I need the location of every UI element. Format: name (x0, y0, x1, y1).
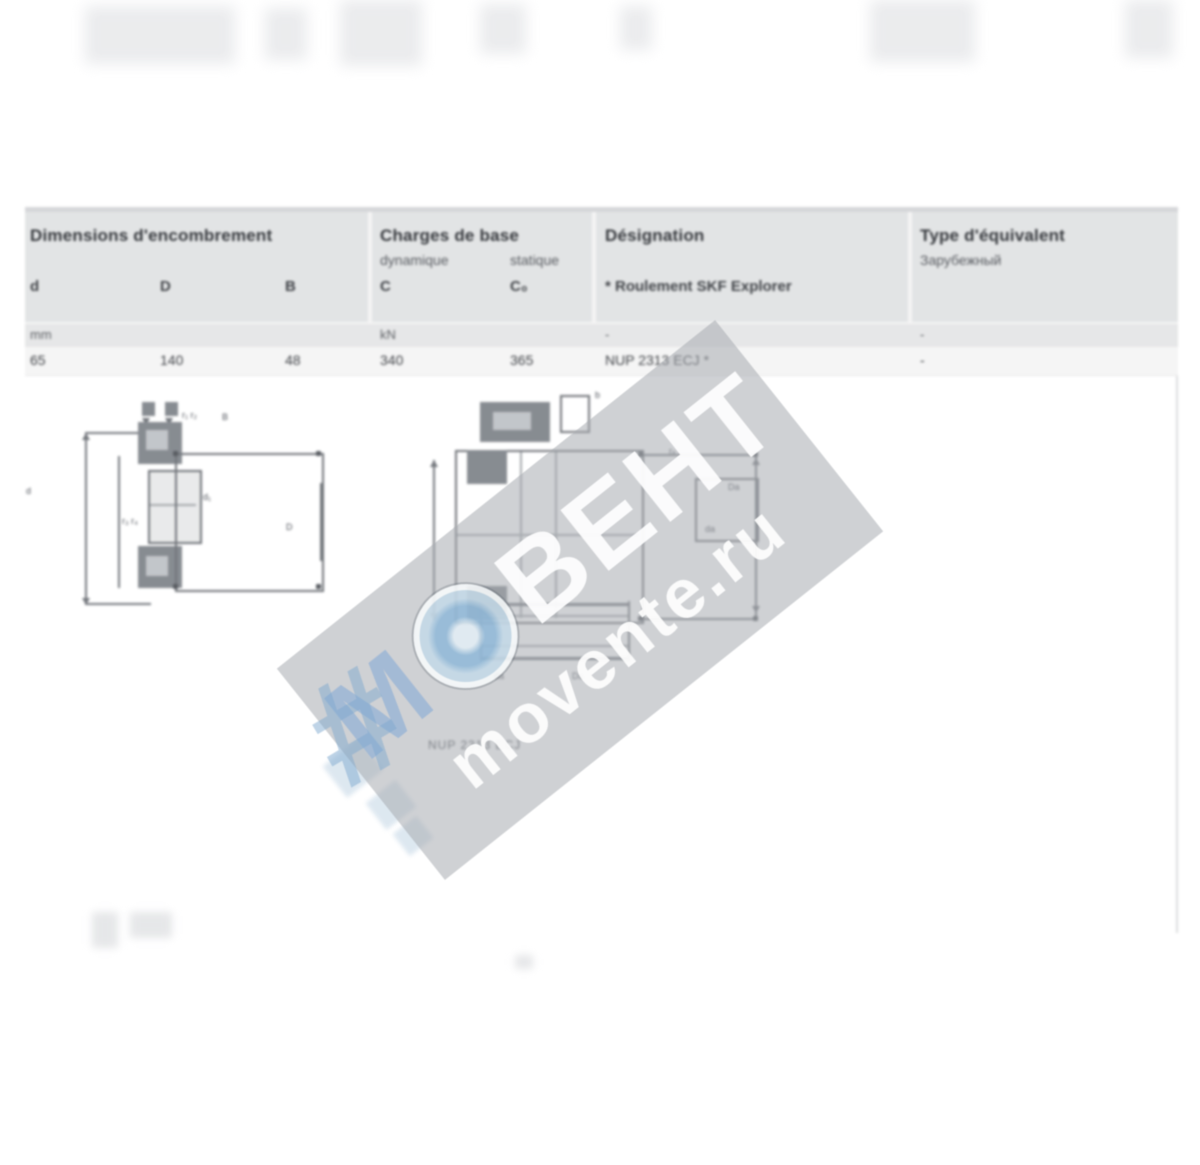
label-B: B (222, 412, 228, 422)
skf-explorer-note: * Roulement SKF Explorer (605, 278, 792, 295)
column-header-dimensions: Dimensions d'encombrement (30, 226, 272, 246)
column-separator (592, 212, 596, 322)
label-b: b (595, 390, 600, 400)
column-separator (908, 212, 912, 322)
cell-dynamic-load: 340 (380, 352, 403, 368)
scan-ghost (265, 8, 307, 60)
table-header-band: Dimensions d'encombrement Charges de bas… (25, 207, 1178, 322)
bearing-dimension-table: Dimensions d'encombrement Charges de bas… (25, 207, 1178, 376)
table-row: 65 140 48 340 365 NUP 2313 ECJ * - (25, 347, 1178, 376)
scan-ghost (85, 6, 235, 64)
scan-ghost (480, 4, 526, 54)
subheader-dynamic: dynamique (380, 252, 449, 268)
column-header-basic-loads: Charges de base (380, 226, 519, 246)
symbol-C0: C₀ (510, 278, 528, 295)
symbol-D: D (160, 278, 171, 295)
scan-smudge (130, 912, 172, 938)
scan-ghost (1125, 0, 1173, 58)
column-header-designation: Désignation (605, 226, 705, 246)
label-d: d (26, 486, 31, 496)
scan-smudge (92, 912, 118, 948)
table-units-row: mm kN - - (25, 322, 1178, 347)
symbol-d: d (30, 278, 39, 295)
subheader-static: statique (510, 252, 559, 268)
symbol-C: C (380, 278, 391, 295)
symbol-B: B (285, 278, 296, 295)
subheader-equivalent: Зарубежный (920, 252, 1002, 268)
column-separator (368, 212, 372, 322)
cell-bore-diameter: 65 (30, 352, 46, 368)
label-r3r4: r₃ r₄ (122, 516, 138, 526)
cell-width: 48 (285, 352, 301, 368)
unit-kn: kN (380, 327, 396, 342)
scan-ghost (870, 0, 975, 62)
cell-static-load: 365 (510, 352, 533, 368)
scan-smudge (515, 955, 533, 969)
unit-dash: - (920, 327, 924, 342)
column-header-equivalent: Type d'équivalent (920, 226, 1065, 246)
cell-outer-diameter: 140 (160, 352, 183, 368)
bearing-cross-section-drawing: r₁ r₂ B d d₁ D r₃ r₄ (70, 388, 310, 633)
cell-equivalent: - (920, 352, 925, 368)
label-r1r2: r₁ r₂ (182, 410, 197, 420)
unit-mm: mm (30, 327, 52, 342)
scan-ghost (620, 6, 652, 50)
scan-ghost (340, 0, 422, 66)
unit-dash: - (605, 327, 609, 342)
